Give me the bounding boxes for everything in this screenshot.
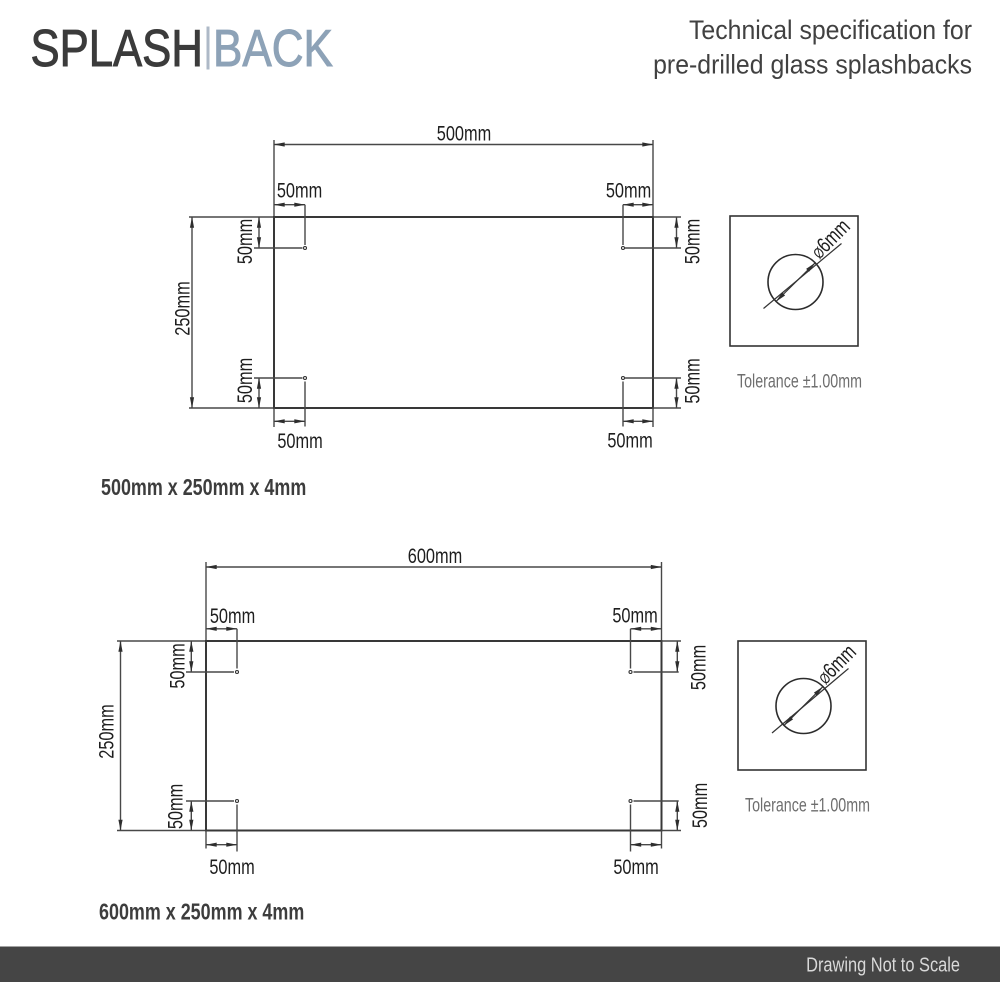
svg-text:Tolerance ±1.00mm: Tolerance ±1.00mm bbox=[737, 370, 862, 391]
svg-text:Drawing Not to Scale: Drawing Not to Scale bbox=[806, 953, 960, 976]
svg-text:50mm: 50mm bbox=[607, 429, 652, 453]
svg-text:50mm: 50mm bbox=[166, 643, 190, 688]
svg-text:50mm: 50mm bbox=[164, 784, 188, 829]
svg-text:600mm x 250mm x 4mm: 600mm x 250mm x 4mm bbox=[99, 899, 304, 925]
svg-text:Tolerance ±1.00mm: Tolerance ±1.00mm bbox=[745, 795, 870, 816]
svg-text:50mm: 50mm bbox=[681, 358, 705, 403]
svg-text:50mm: 50mm bbox=[210, 605, 255, 629]
svg-text:SPLASH: SPLASH bbox=[31, 21, 203, 78]
svg-text:50mm: 50mm bbox=[209, 856, 254, 880]
svg-text:50mm: 50mm bbox=[689, 783, 713, 828]
svg-text:Technical specification for: Technical specification for bbox=[689, 16, 972, 45]
svg-text:600mm: 600mm bbox=[408, 545, 462, 569]
svg-text:50mm: 50mm bbox=[277, 430, 322, 454]
svg-text:50mm: 50mm bbox=[606, 179, 651, 203]
svg-text:50mm: 50mm bbox=[613, 856, 658, 880]
svg-text:250mm: 250mm bbox=[171, 281, 195, 335]
svg-text:50mm: 50mm bbox=[687, 645, 711, 690]
svg-text:BACK: BACK bbox=[213, 20, 333, 78]
svg-text:50mm: 50mm bbox=[234, 358, 258, 403]
svg-text:50mm: 50mm bbox=[681, 219, 705, 264]
svg-text:pre-drilled glass splashbacks: pre-drilled glass splashbacks bbox=[653, 51, 972, 80]
svg-text:50mm: 50mm bbox=[234, 219, 258, 264]
svg-text:500mm: 500mm bbox=[437, 122, 491, 146]
svg-text:50mm: 50mm bbox=[277, 179, 322, 203]
svg-text:500mm x 250mm x 4mm: 500mm x 250mm x 4mm bbox=[101, 475, 306, 501]
svg-text:50mm: 50mm bbox=[612, 604, 657, 628]
svg-text:250mm: 250mm bbox=[95, 704, 119, 758]
